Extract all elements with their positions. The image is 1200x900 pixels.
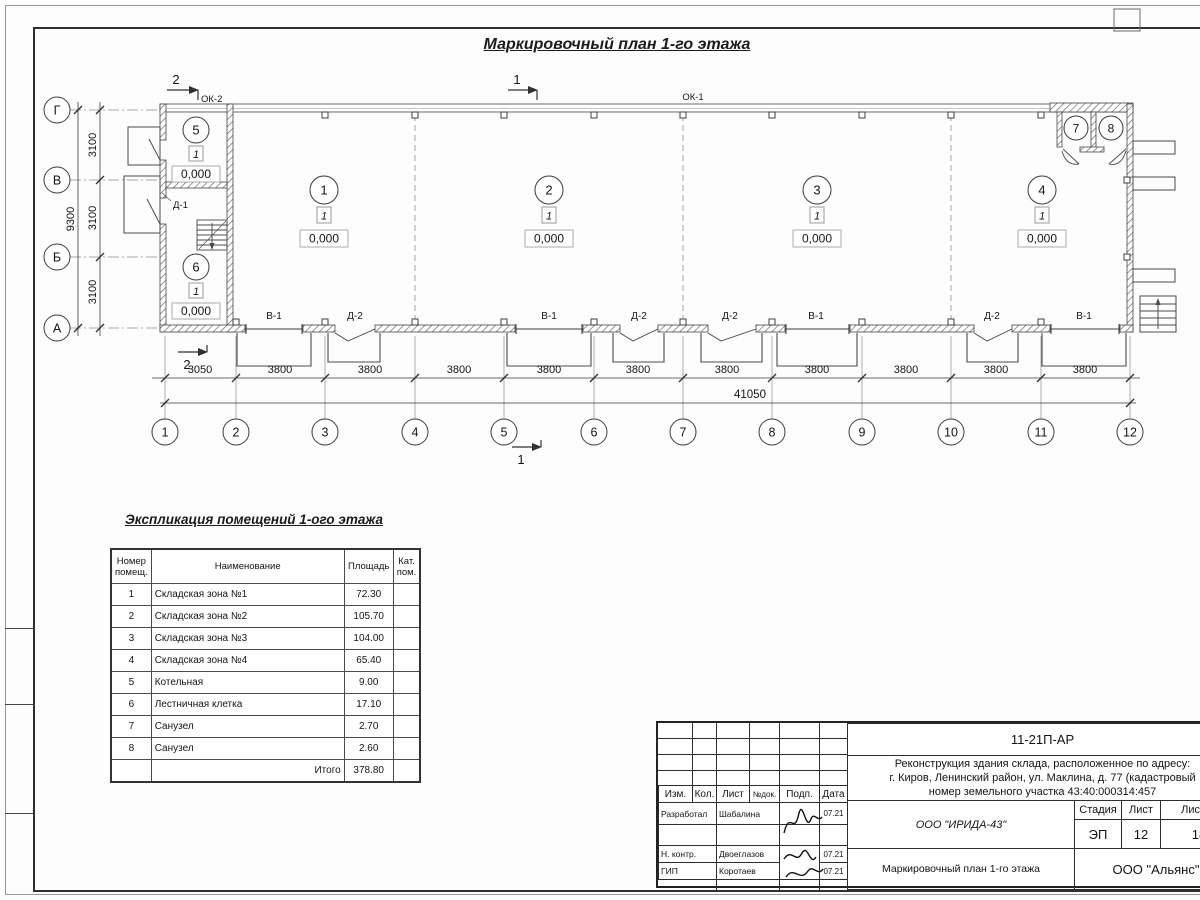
room-number: 6 <box>192 260 199 275</box>
axis-label: А <box>53 322 62 336</box>
table-total-row: Итого378.80 <box>111 760 420 783</box>
room-cat <box>393 716 420 738</box>
room-number: 8 <box>1108 122 1115 136</box>
room-number: 5 <box>192 123 199 138</box>
opening-label: В-1 <box>808 311 824 322</box>
table-row: 4Складская зона №465.40 <box>111 650 420 672</box>
room-cat <box>393 584 420 606</box>
project-line: г. Киров, Ленинский район, ул. Маклина, … <box>889 771 1195 785</box>
stamp-date: 07.21 <box>819 845 848 863</box>
dim-value: 3800 <box>984 364 1008 376</box>
stamp-col-doc: №док. <box>749 785 780 803</box>
opening-label: В-1 <box>541 311 557 322</box>
axis-label: 3 <box>322 426 329 440</box>
stamp-col-data: Дата <box>819 785 848 803</box>
stamp-empty-cell <box>779 824 820 846</box>
dim-value: 3800 <box>537 364 561 376</box>
project-line: номер земельного участка 43:40:000314:45… <box>929 785 1157 799</box>
axis-circles-bottom: 1 2 3 4 5 6 7 8 9 10 11 12 <box>152 419 1143 445</box>
table-row: 3Складская зона №3104.00 <box>111 628 420 650</box>
room-name: Санузел <box>151 738 344 760</box>
right-exterior <box>1133 141 1176 332</box>
axis-label: 12 <box>1123 426 1137 440</box>
stamp-name: Двоеглазов <box>716 845 780 863</box>
sheets-total: 18 <box>1160 819 1200 849</box>
axis-label: 6 <box>591 426 598 440</box>
project-description: Реконструкция здания склада, расположенн… <box>847 755 1200 801</box>
room-name: Котельная <box>151 672 344 694</box>
project-line: Реконструкция здания склада, расположенн… <box>895 757 1191 771</box>
col-header-name: Наименование <box>151 549 344 584</box>
axis-label: 4 <box>412 426 419 440</box>
axis-lines-left <box>70 110 158 328</box>
axis-label: 7 <box>680 426 687 440</box>
section-markers <box>167 86 542 451</box>
opening-label: Д-2 <box>984 311 1000 322</box>
room-cat <box>393 606 420 628</box>
frame-left-tick <box>5 628 34 629</box>
dim-value: 3800 <box>715 364 739 376</box>
room-area: 9.00 <box>344 672 393 694</box>
room-cat <box>393 650 420 672</box>
elevation-mark: 0,000 <box>309 232 339 246</box>
dim-total: 41050 <box>734 389 766 401</box>
dim-value: 3800 <box>626 364 650 376</box>
sheet-number: 12 <box>1121 819 1161 849</box>
dim-left-total: 9300 <box>65 207 77 231</box>
stamp-role: Разработал <box>658 802 717 825</box>
table-row: 7Санузел2.70 <box>111 716 420 738</box>
room-number: 7 <box>1073 122 1080 136</box>
total-label: Итого <box>151 760 344 783</box>
total-value: 378.80 <box>344 760 393 783</box>
room-name: Складская зона №3 <box>151 628 344 650</box>
building-walls <box>160 103 1133 332</box>
drawing-sheet: { "sheet": { "main_title": "Маркировочны… <box>0 0 1200 900</box>
stamp-empty-cell <box>716 824 780 846</box>
room-name: Складская зона №2 <box>151 606 344 628</box>
room-name: Санузел <box>151 716 344 738</box>
table-row: 2Складская зона №2105.70 <box>111 606 420 628</box>
table-header-row: Номер помещ. Наименование Площадь Кат. п… <box>111 549 420 584</box>
opening-label: Д-2 <box>631 311 647 322</box>
floor-number: 1 <box>546 211 552 223</box>
room-cat <box>393 628 420 650</box>
elevation-mark: 0,000 <box>181 167 211 181</box>
dim-value: 3050 <box>188 364 212 376</box>
dim-value: 3100 <box>87 206 99 230</box>
table-row: 1Складская зона №172.30 <box>111 584 420 606</box>
window-label-ok2: ОК-2 <box>201 94 222 105</box>
stage-label: Стадия <box>1074 800 1122 820</box>
stairs-room6 <box>197 220 227 250</box>
room-area: 105.70 <box>344 606 393 628</box>
room-number: 2 <box>545 183 552 198</box>
floor-plan: 2 1 2 1 ОК-2 ОК-1 Д-1 В-1 Д-2 В-1 Д-2 Д-… <box>0 0 1200 480</box>
stamp-role: ГИП <box>658 862 717 880</box>
room-num: 8 <box>111 738 151 760</box>
table-row: 6Лестничная клетка17.10 <box>111 694 420 716</box>
stamp-date: 07.21 <box>819 802 848 825</box>
stamp-empty-cell <box>819 824 848 846</box>
axis-label: 5 <box>501 426 508 440</box>
dim-value: 3800 <box>268 364 292 376</box>
org-name: ООО "Альянс" <box>1074 848 1200 890</box>
room-num: 1 <box>111 584 151 606</box>
elevation-mark: 0,000 <box>1027 232 1057 246</box>
doc-number-corner-box <box>1114 9 1140 31</box>
stamp-signature-cell <box>779 802 820 825</box>
axis-label: 10 <box>944 426 958 440</box>
axis-label: 8 <box>769 426 776 440</box>
window-label-ok1: ОК-1 <box>682 92 703 103</box>
floor-number: 1 <box>814 211 820 223</box>
elevation-mark: 0,000 <box>802 232 832 246</box>
dim-value: 3100 <box>87 280 99 304</box>
elevation-mark: 0,000 <box>534 232 564 246</box>
designer-company: ООО "ИРИДА-43" <box>847 800 1075 849</box>
opening-label: В-1 <box>1076 311 1092 322</box>
col-header-num: Номер помещ. <box>111 549 151 584</box>
room-area: 72.30 <box>344 584 393 606</box>
stamp-name: Шабалина <box>716 802 780 825</box>
room-area: 2.70 <box>344 716 393 738</box>
col-header-cat: Кат. пом. <box>393 549 420 584</box>
elevation-mark: 0,000 <box>181 304 211 318</box>
stamp-col-izm: Изм. <box>658 785 693 803</box>
floor-number: 1 <box>193 286 199 298</box>
section-mark-1-top: 1 <box>513 72 520 87</box>
stamp-line <box>658 879 847 880</box>
column-markers <box>233 112 1130 325</box>
floor-number: 1 <box>321 211 327 223</box>
stamp-empty-cell <box>658 824 717 846</box>
dim-value: 3800 <box>894 364 918 376</box>
dim-value: 3800 <box>358 364 382 376</box>
opening-label: Д-2 <box>722 311 738 322</box>
stamp-col-list: Лист <box>716 785 750 803</box>
frame-left-tick <box>5 704 34 705</box>
section-mark-1-bottom: 1 <box>517 452 524 467</box>
zone-divider-lines <box>415 115 951 322</box>
room-cat <box>393 672 420 694</box>
room-number: 3 <box>813 183 820 198</box>
room-name: Лестничная клетка <box>151 694 344 716</box>
room-num: 4 <box>111 650 151 672</box>
stamp-col-kol: Кол. <box>692 785 717 803</box>
room-markers: 1 1 0,000 2 1 0,000 3 1 0,000 4 1 0,000 … <box>172 116 1123 319</box>
sheet-label: Лист <box>1121 800 1161 820</box>
room-area: 65.40 <box>344 650 393 672</box>
axis-lines-bottom <box>165 336 1130 419</box>
sheets-label: Листов <box>1160 800 1200 820</box>
axis-label: 1 <box>162 426 169 440</box>
room-area: 2.60 <box>344 738 393 760</box>
sheet-title: Маркировочный план 1-го этажа <box>847 848 1075 890</box>
dim-value: 3100 <box>87 133 99 157</box>
stamp-role: Н. контр. <box>658 845 717 863</box>
floor-number: 1 <box>193 149 199 161</box>
title-block: Изм. Кол. Лист №док. Подп. Дата Разработ… <box>656 721 1200 888</box>
axis-label: 2 <box>233 426 240 440</box>
frame-left-tick <box>5 813 34 814</box>
opening-label: Д-2 <box>347 311 363 322</box>
room-area: 104.00 <box>344 628 393 650</box>
room-num: 7 <box>111 716 151 738</box>
axis-label: В <box>53 174 61 188</box>
axis-label: 11 <box>1035 426 1048 440</box>
col-header-area: Площадь <box>344 549 393 584</box>
axis-label: Г <box>54 104 61 118</box>
floor-number: 1 <box>1039 211 1045 223</box>
room-number: 4 <box>1038 183 1045 198</box>
room-area: 17.10 <box>344 694 393 716</box>
room-cat <box>393 694 420 716</box>
axis-label: Б <box>53 251 61 265</box>
stamp-name: Коротаев <box>716 862 780 880</box>
dim-value: 3800 <box>447 364 471 376</box>
section-mark-2-top: 2 <box>172 72 179 87</box>
explication-table: Номер помещ. Наименование Площадь Кат. п… <box>110 548 421 783</box>
table-row: 8Санузел2.60 <box>111 738 420 760</box>
room-num: 2 <box>111 606 151 628</box>
door-label-d1: Д-1 <box>173 200 188 211</box>
explication-title: Экспликация помещений 1-ого этажа <box>125 512 383 527</box>
stamp-date: 07.21 <box>819 862 848 880</box>
stage-value: ЭП <box>1074 819 1122 849</box>
room-num: 5 <box>111 672 151 694</box>
dim-value: 3800 <box>1073 364 1097 376</box>
opening-label: В-1 <box>266 311 282 322</box>
stamp-col-podp: Подп. <box>779 785 820 803</box>
room-num: 3 <box>111 628 151 650</box>
room-number: 1 <box>320 183 327 198</box>
room-name: Складская зона №4 <box>151 650 344 672</box>
axis-label: 9 <box>859 426 866 440</box>
table-row: 5Котельная9.00 <box>111 672 420 694</box>
dim-value: 3800 <box>805 364 829 376</box>
room-cat <box>393 738 420 760</box>
doc-number: 11-21П-АР <box>847 723 1200 756</box>
room-num: 6 <box>111 694 151 716</box>
room-name: Складская зона №1 <box>151 584 344 606</box>
